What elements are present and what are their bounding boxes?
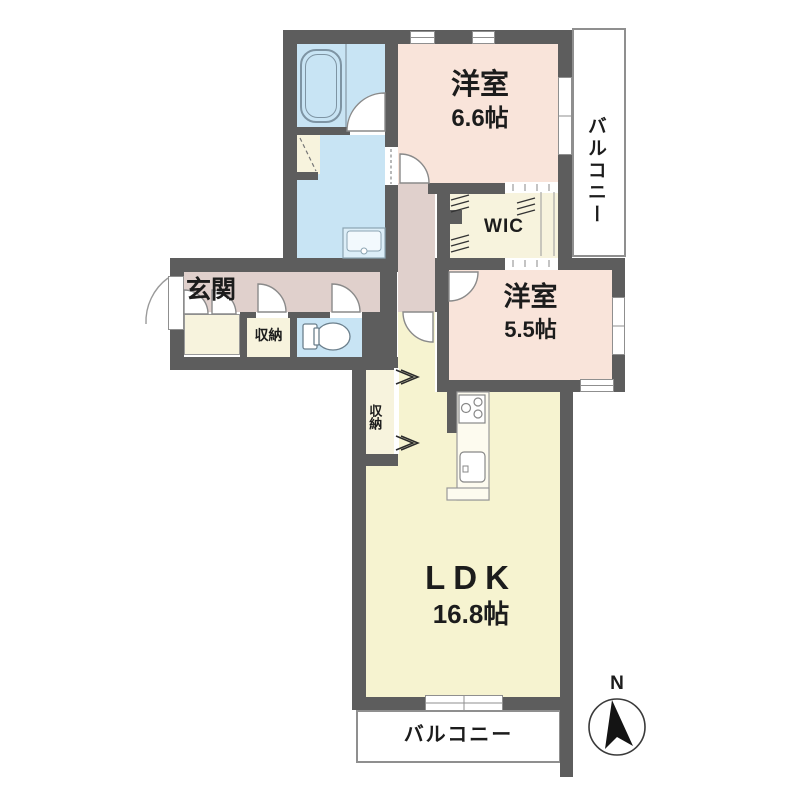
room-western-5-5-label: 洋室 bbox=[449, 283, 612, 313]
room-ldk-label: LDK bbox=[376, 560, 566, 596]
toilet-icon bbox=[303, 323, 350, 350]
room-ldk-area: 16.8帖 bbox=[376, 600, 566, 629]
north-label: N bbox=[600, 674, 634, 695]
door-arc-bathroom bbox=[347, 93, 385, 131]
room-western-5-5-area: 5.5帖 bbox=[449, 318, 612, 342]
linen-dashed-line bbox=[300, 138, 316, 171]
bathtub-icon bbox=[301, 44, 346, 127]
north-arrow-icon bbox=[589, 699, 645, 755]
stove-icon bbox=[459, 395, 485, 423]
sink-icon bbox=[460, 452, 485, 482]
balcony-bottom-label: バルコニー bbox=[356, 724, 561, 746]
balcony-right-label: バルコニー bbox=[584, 86, 605, 256]
accordion-chevron-icon bbox=[396, 370, 418, 450]
vanity-icon bbox=[343, 228, 385, 258]
entrance-label: 玄関 bbox=[166, 277, 256, 305]
room-western-6-6-area: 6.6帖 bbox=[398, 106, 562, 132]
floor-plan: 洋室 6.6帖 バルコニー WIC 洋室 5.5帖 玄関 収納 収納 LDK 1… bbox=[0, 0, 800, 800]
room-wic-label: WIC bbox=[478, 217, 530, 238]
door-arc-storage-hall bbox=[258, 284, 286, 312]
door-arc-toilet bbox=[332, 284, 360, 312]
door-arc-ldk bbox=[403, 312, 433, 342]
storage-hall-label: 収納 bbox=[247, 328, 290, 343]
storage-ldk-label: 収納 bbox=[367, 388, 381, 446]
door-arc-entrance bbox=[146, 278, 168, 324]
room-western-6-6-label: 洋室 bbox=[398, 70, 562, 102]
door-arc-western-6-6 bbox=[400, 154, 429, 183]
